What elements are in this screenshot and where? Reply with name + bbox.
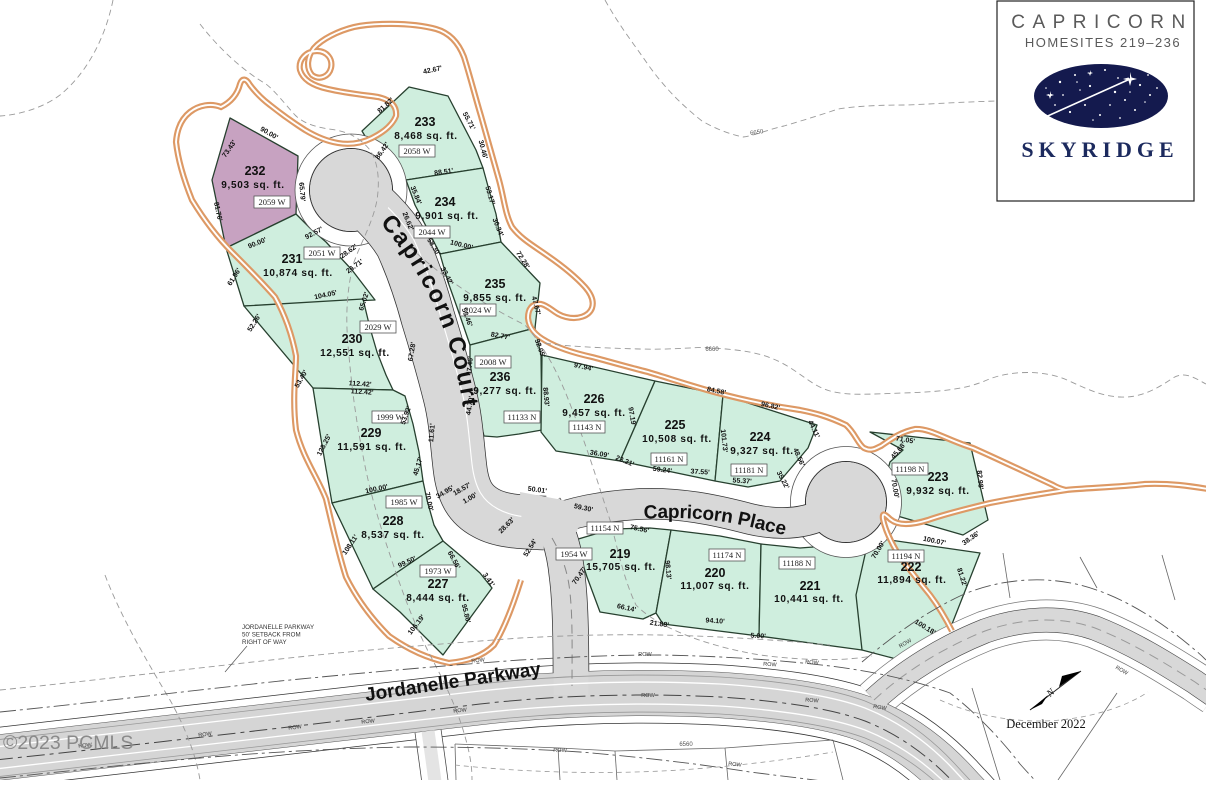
svg-text:230: 230 — [342, 332, 363, 346]
svg-text:12,551 sq. ft.: 12,551 sq. ft. — [320, 348, 390, 359]
svg-text:2029 W: 2029 W — [365, 322, 392, 332]
svg-text:ROW: ROW — [641, 693, 655, 699]
svg-text:5.00': 5.00' — [750, 632, 766, 640]
svg-text:15,705 sq. ft.: 15,705 sq. ft. — [586, 562, 656, 573]
svg-text:11154 N: 11154 N — [591, 523, 620, 533]
svg-text:©2023 PCMLS: ©2023 PCMLS — [3, 732, 133, 754]
svg-text:11174 N: 11174 N — [713, 550, 742, 560]
svg-text:229: 229 — [361, 426, 382, 440]
svg-text:9,932 sq. ft.: 9,932 sq. ft. — [906, 486, 970, 497]
svg-text:8,468 sq. ft.: 8,468 sq. ft. — [394, 131, 458, 142]
svg-text:1973 W: 1973 W — [425, 566, 452, 576]
svg-text:11143 N: 11143 N — [573, 422, 602, 432]
svg-text:2059 W: 2059 W — [259, 197, 286, 207]
svg-text:11,007 sq. ft.: 11,007 sq. ft. — [680, 581, 749, 592]
svg-text:11194 N: 11194 N — [892, 551, 921, 561]
svg-text:ROW: ROW — [638, 652, 652, 658]
svg-text:232: 232 — [245, 164, 266, 178]
svg-text:228: 228 — [383, 514, 404, 528]
svg-text:226: 226 — [584, 392, 605, 406]
svg-text:221: 221 — [800, 579, 821, 593]
svg-text:10,441 sq. ft.: 10,441 sq. ft. — [774, 594, 844, 605]
svg-text:94.10': 94.10' — [705, 617, 725, 625]
svg-text:6660: 6660 — [705, 347, 719, 353]
svg-text:RIGHT OF WAY: RIGHT OF WAY — [242, 639, 287, 646]
svg-text:11161 N: 11161 N — [655, 454, 684, 464]
svg-text:11188 N: 11188 N — [783, 558, 812, 568]
svg-text:37.55': 37.55' — [690, 468, 710, 476]
svg-text:ROW: ROW — [805, 698, 820, 705]
svg-text:1985 W: 1985 W — [391, 497, 418, 507]
svg-text:2008 W: 2008 W — [480, 357, 507, 367]
svg-text:10,508 sq. ft.: 10,508 sq. ft. — [642, 434, 712, 445]
svg-text:9,855 sq. ft.: 9,855 sq. ft. — [463, 293, 527, 304]
svg-text:235: 235 — [485, 277, 506, 291]
svg-text:219: 219 — [610, 547, 631, 561]
svg-text:1954 W: 1954 W — [561, 549, 588, 559]
svg-text:HOMESITES 219–236: HOMESITES 219–236 — [1025, 35, 1181, 50]
svg-text:233: 233 — [415, 115, 436, 129]
svg-text:9,457 sq. ft.: 9,457 sq. ft. — [562, 408, 626, 419]
svg-text:2058 W: 2058 W — [404, 146, 431, 156]
svg-text:December 2022: December 2022 — [1006, 717, 1085, 731]
svg-text:JORDANELLE PARKWAY: JORDANELLE PARKWAY — [242, 624, 314, 631]
svg-text:ROW: ROW — [553, 748, 567, 754]
svg-text:8,444 sq. ft.: 8,444 sq. ft. — [406, 593, 470, 604]
svg-text:50' SETBACK FROM: 50' SETBACK FROM — [242, 632, 301, 639]
svg-text:CAPRICORN: CAPRICORN — [1011, 12, 1193, 33]
svg-text:231: 231 — [282, 252, 303, 266]
svg-text:234: 234 — [435, 195, 456, 209]
svg-text:9,503 sq. ft.: 9,503 sq. ft. — [221, 180, 285, 191]
svg-text:11181 N: 11181 N — [735, 465, 764, 475]
svg-text:ROW: ROW — [763, 662, 778, 669]
svg-text:55.37': 55.37' — [732, 477, 752, 485]
svg-text:8,537 sq. ft.: 8,537 sq. ft. — [361, 530, 425, 541]
svg-text:223: 223 — [928, 470, 949, 484]
svg-text:224: 224 — [750, 430, 771, 444]
svg-text:227: 227 — [428, 577, 449, 591]
svg-text:ROW: ROW — [805, 660, 820, 667]
svg-text:10,874 sq. ft.: 10,874 sq. ft. — [263, 268, 333, 279]
svg-text:11133 N: 11133 N — [508, 412, 537, 422]
svg-text:1999 W: 1999 W — [377, 412, 404, 422]
svg-text:11,591 sq. ft.: 11,591 sq. ft. — [337, 442, 406, 453]
svg-text:225: 225 — [665, 418, 686, 432]
svg-text:236: 236 — [490, 370, 511, 384]
svg-text:11,894 sq. ft.: 11,894 sq. ft. — [877, 575, 946, 586]
svg-text:2044 W: 2044 W — [419, 227, 446, 237]
svg-text:9,901 sq. ft.: 9,901 sq. ft. — [415, 211, 479, 222]
svg-text:2051 W: 2051 W — [309, 248, 336, 258]
svg-text:11198 N: 11198 N — [896, 464, 925, 474]
svg-text:6560: 6560 — [679, 742, 693, 748]
svg-text:9,327 sq. ft.: 9,327 sq. ft. — [730, 446, 794, 457]
svg-text:220: 220 — [705, 566, 726, 580]
svg-text:SKYRIDGE: SKYRIDGE — [1021, 137, 1178, 162]
svg-text:9,277 sq. ft.: 9,277 sq. ft. — [473, 386, 537, 397]
